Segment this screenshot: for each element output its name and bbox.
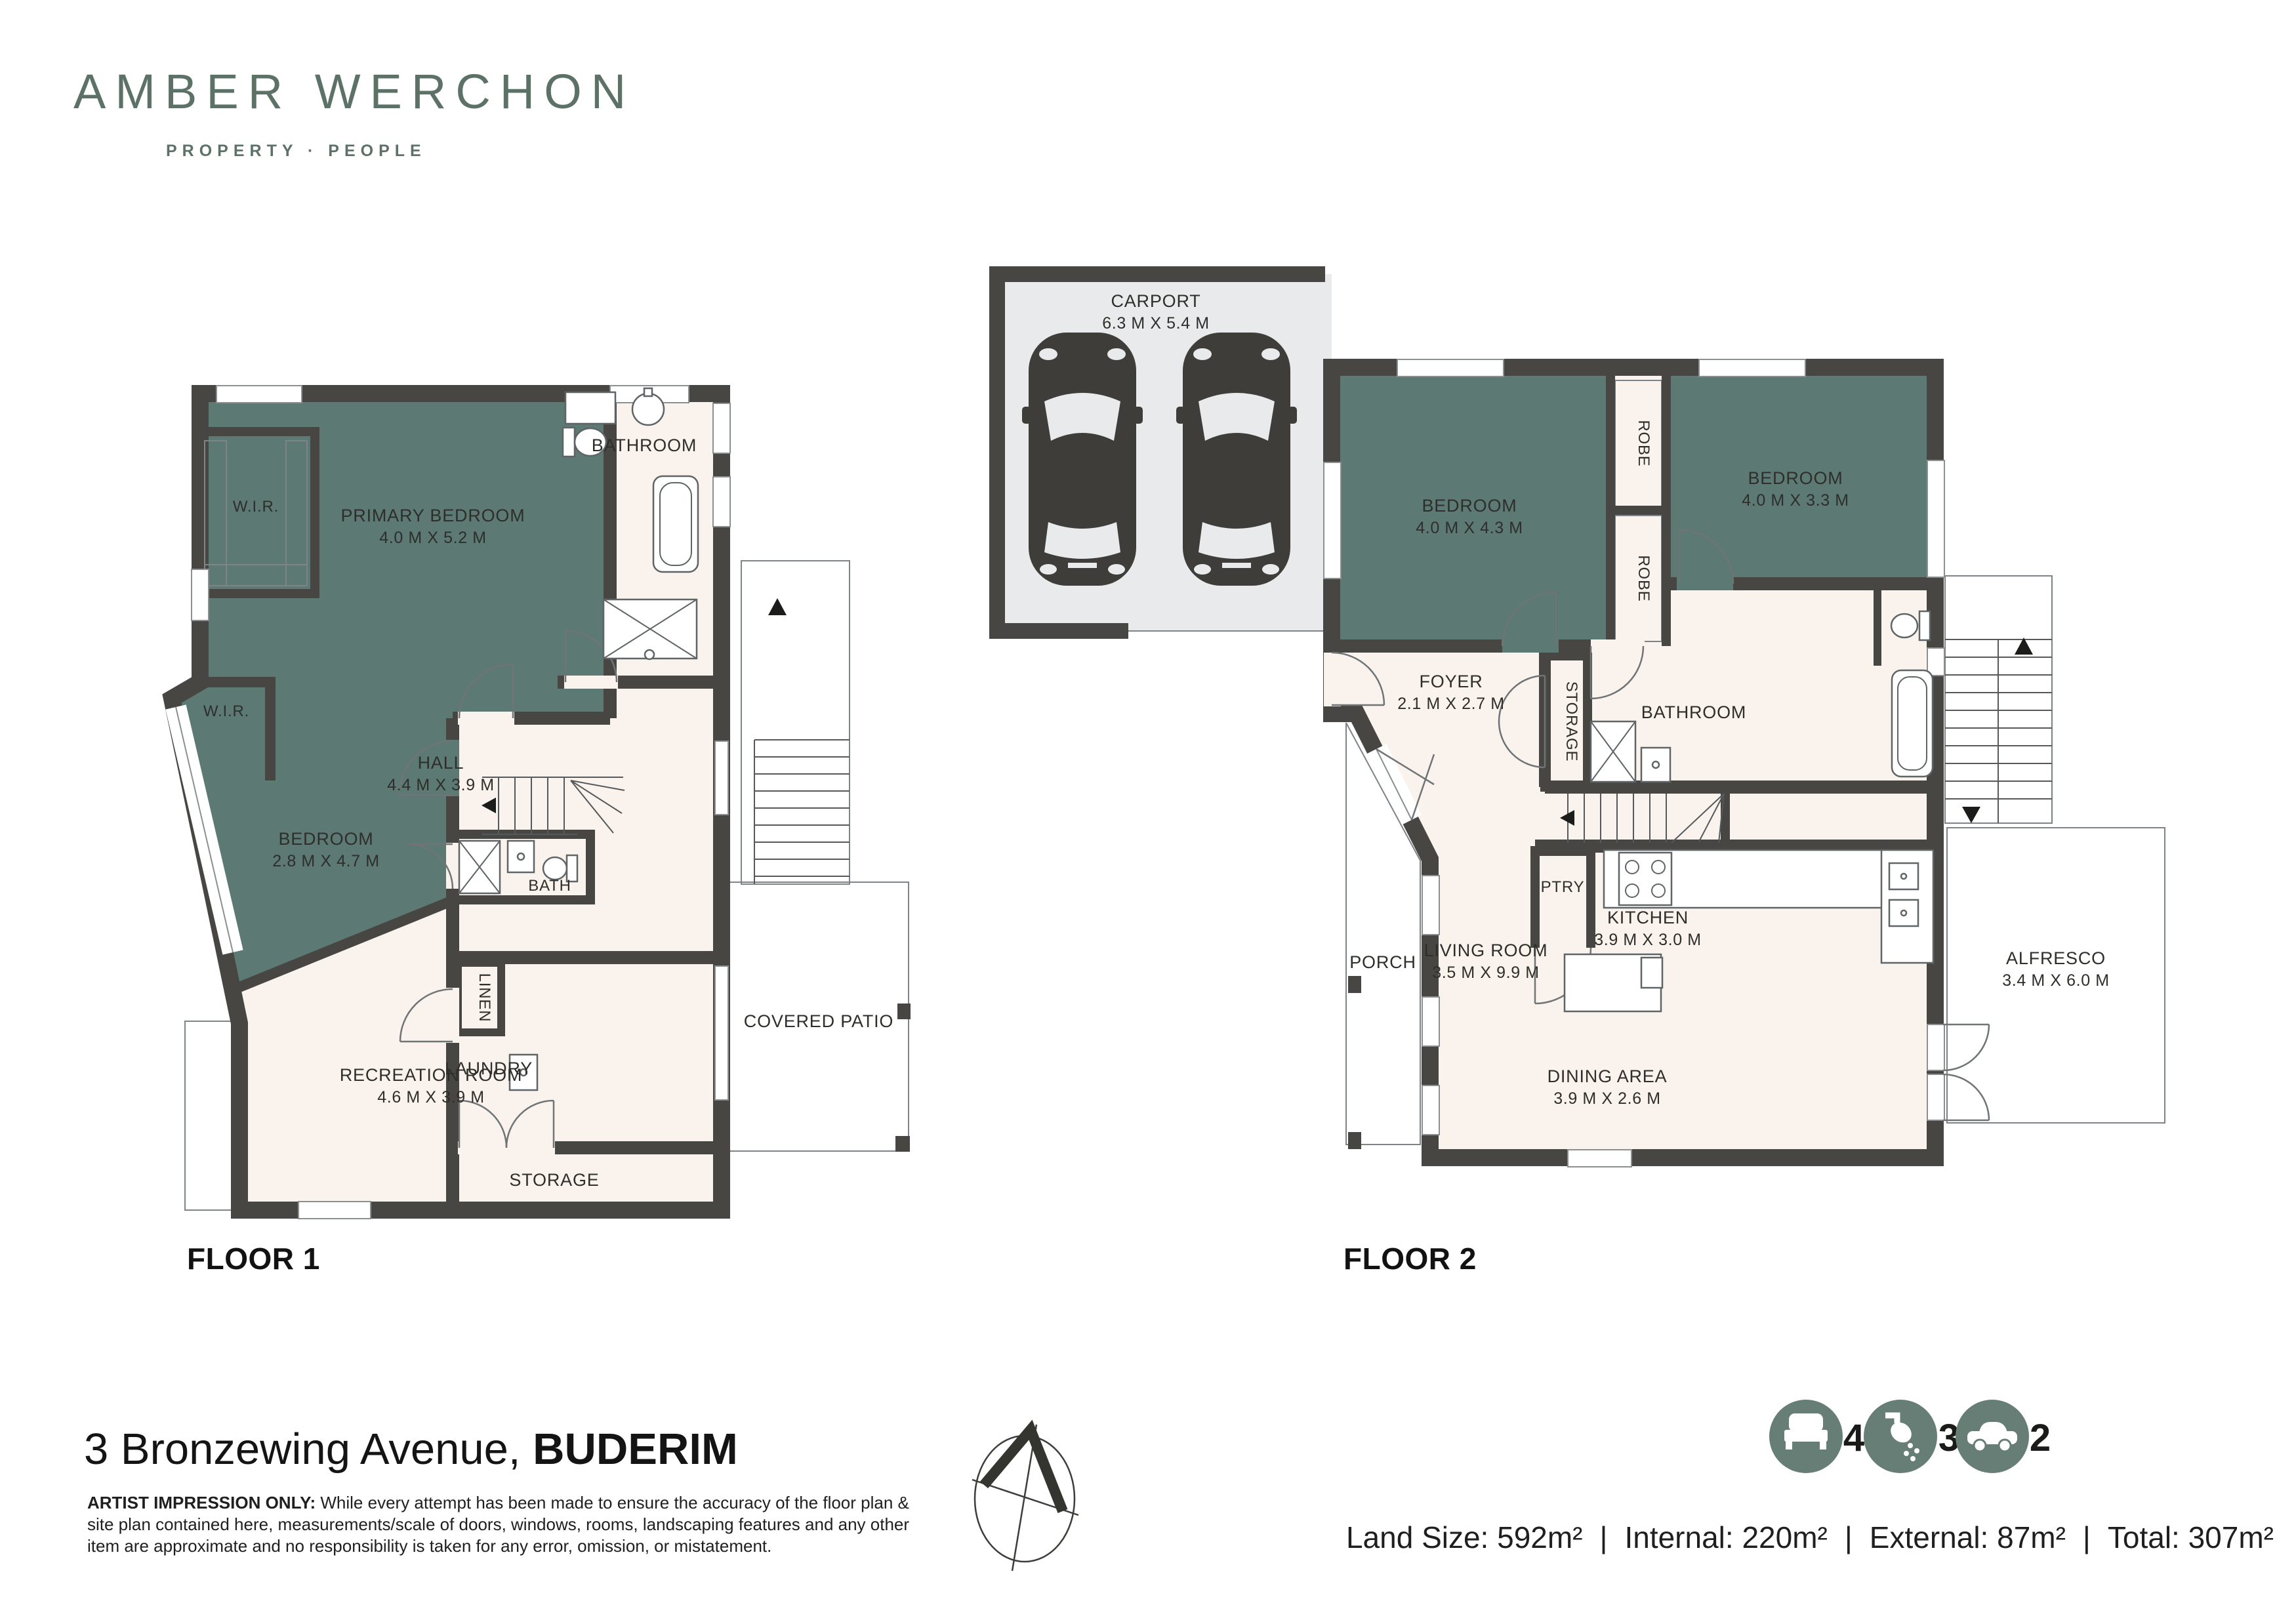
ptry-label: PTRY	[1541, 878, 1585, 896]
disclaimer-line1: ARTIST IMPRESSION ONLY: While every atte…	[87, 1493, 909, 1512]
shower-icon	[1864, 1400, 1937, 1473]
floor1-wir1-label: W.I.R.	[233, 498, 279, 516]
alfresco-dims: 3.4 M X 6.0 M	[2002, 971, 2109, 990]
floor2-external-stairs	[1945, 576, 2052, 823]
floor2-plan: CARPORT 6.3 M X 5.4 M	[997, 274, 2165, 1276]
land-size: Land Size: 592m²	[1346, 1520, 1583, 1554]
disclaimer-line3: item are approximate and no responsibili…	[87, 1536, 771, 1556]
separator: |	[2083, 1520, 2091, 1554]
floor1-wir2-label: W.I.R.	[203, 702, 249, 720]
address-street: 3 Bronzewing Avenue,	[84, 1425, 533, 1474]
carport-label: CARPORT	[1111, 291, 1200, 311]
stairs-up-arrow	[768, 598, 787, 615]
separator: |	[1845, 1520, 1853, 1554]
robe1-label: ROBE	[1635, 420, 1652, 466]
alfresco-label: ALFRESCO	[2006, 948, 2106, 968]
porch-label: PORCH	[1349, 952, 1416, 972]
dining-dims: 3.9 M X 2.6 M	[1553, 1089, 1660, 1108]
floor1-bath-label: BATH	[528, 877, 571, 895]
brand-tagline: PROPERTY · PEOPLE	[166, 142, 426, 160]
disclaimer-line2: site plan contained here, measurements/s…	[87, 1514, 909, 1534]
floor1-storage-label: STORAGE	[509, 1170, 599, 1190]
separator: |	[1600, 1520, 1608, 1554]
kitchen-label: KITCHEN	[1607, 908, 1689, 927]
internal-size: Internal: 220m²	[1624, 1520, 1827, 1554]
floor1-bathroom-label: BATHROOM	[592, 436, 697, 455]
carport-dims: 6.3 M X 5.4 M	[1102, 314, 1209, 333]
floor1-title: FLOOR 1	[187, 1242, 320, 1276]
car-icon	[1022, 333, 1143, 586]
footer: 3 Bronzewing Avenue, BUDERIM ARTIST IMPR…	[84, 1400, 2274, 1571]
foyer-dims: 2.1 M X 2.7 M	[1397, 695, 1504, 713]
floor1-hall-label: HALL	[418, 753, 464, 773]
porch-post	[1348, 976, 1361, 993]
floor1-primary-bedroom-label: PRIMARY BEDROOM	[340, 506, 525, 525]
brand-name: AMBER WERCHON	[73, 64, 635, 119]
foyer-label: FOYER	[1419, 672, 1483, 691]
total-size: Total: 307m²	[2108, 1520, 2274, 1554]
floor2-bedroom-right-label: BEDROOM	[1748, 468, 1843, 488]
car-icon	[1176, 333, 1297, 586]
address-suburb: BUDERIM	[533, 1425, 738, 1474]
address: 3 Bronzewing Avenue, BUDERIM	[84, 1425, 738, 1474]
floor2-title: FLOOR 2	[1343, 1242, 1477, 1276]
beds-count: 4	[1843, 1417, 1864, 1459]
patio-post	[897, 1004, 911, 1019]
floor2-bedroom-left-label: BEDROOM	[1422, 496, 1517, 516]
areas-line: Land Size: 592m²|Internal: 220m²|Externa…	[1346, 1520, 2274, 1554]
floor1-linen-label: LINEN	[476, 973, 493, 1023]
living-label: LIVING ROOM	[1424, 941, 1548, 960]
cars-count: 2	[2030, 1417, 2051, 1459]
floor2-bathroom-label: BATHROOM	[1641, 702, 1746, 722]
patio-post	[895, 1136, 910, 1152]
floor1-recreation-dims: 4.6 M X 3.9 M	[377, 1088, 484, 1106]
porch-post	[1348, 1132, 1361, 1149]
car-icon-stat	[1956, 1400, 2029, 1473]
floorplan-page: AMBER WERCHON PROPERTY · PEOPLE	[0, 0, 2296, 1622]
floor2-bedroom-left-dims: 4.0 M X 4.3 M	[1416, 519, 1523, 537]
bed-icon	[1769, 1400, 1843, 1473]
floor1-covered-patio-label: COVERED PATIO	[744, 1011, 893, 1031]
floor1-bedroom-dims: 2.8 M X 4.7 M	[272, 852, 379, 870]
stats: 4 3 2	[1769, 1400, 2051, 1473]
robe2-label: ROBE	[1635, 555, 1652, 601]
brand-logo: AMBER WERCHON PROPERTY · PEOPLE	[73, 64, 635, 160]
floor1-primary-bedroom-dims: 4.0 M X 5.2 M	[379, 529, 486, 547]
kitchen-dims: 3.9 M X 3.0 M	[1594, 931, 1701, 949]
compass-icon	[972, 1425, 1078, 1571]
disclaimer-bold: ARTIST IMPRESSION ONLY:	[87, 1493, 316, 1512]
floor1-plan: W.I.R. W.I.R. PRIMARY BEDROOM 4.0 M X 5.…	[172, 386, 911, 1276]
dining-label: DINING AREA	[1548, 1066, 1668, 1086]
floor1-hall-dims: 4.4 M X 3.9 M	[387, 776, 494, 794]
floor2-storage-label: STORAGE	[1563, 681, 1580, 762]
external-size: External: 87m²	[1870, 1520, 2066, 1554]
floor2-bedroom-right-dims: 4.0 M X 3.3 M	[1742, 491, 1849, 510]
floor1-bedroom-label: BEDROOM	[278, 829, 373, 849]
stairs-down-arrow	[1962, 807, 1980, 823]
floor1-recreation-label: RECREATION ROOM	[340, 1065, 523, 1085]
floorplan-canvas: AMBER WERCHON PROPERTY · PEOPLE	[0, 0, 2296, 1622]
floor1-external-stairs	[741, 561, 850, 884]
living-dims: 3.5 M X 9.9 M	[1432, 963, 1539, 982]
disclaimer-line1-rest: While every attempt has been made to ens…	[316, 1493, 909, 1512]
